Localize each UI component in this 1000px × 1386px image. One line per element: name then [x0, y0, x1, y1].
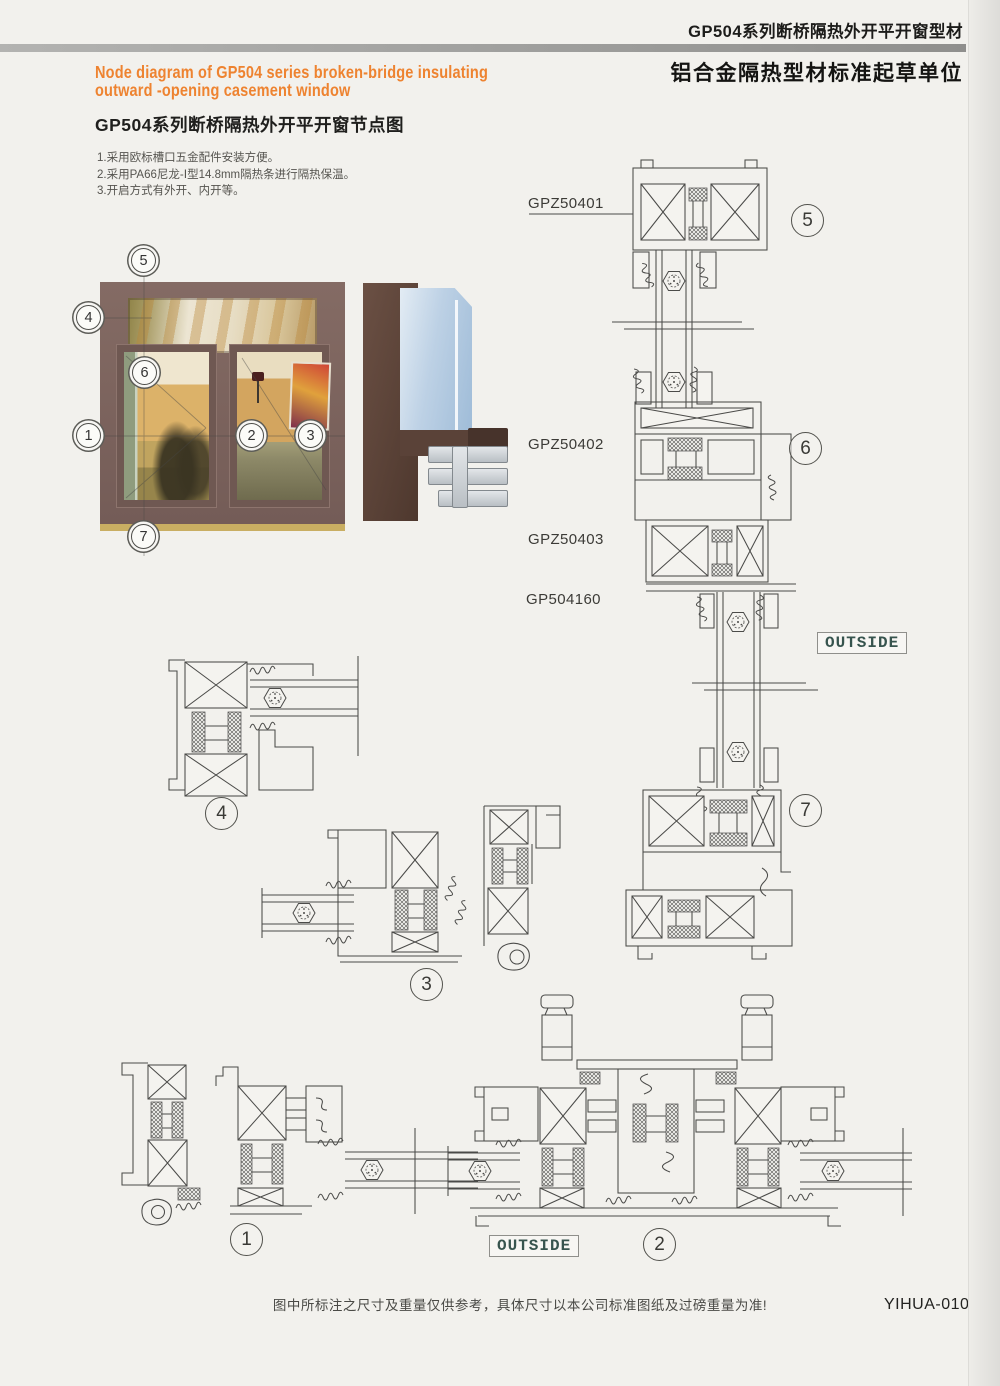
- callout-detail-5: 5: [791, 204, 824, 237]
- outside-label-bottom: OUTSIDE: [489, 1235, 579, 1257]
- callout-photo-7: 7: [131, 524, 156, 549]
- detail-2-drawing: [448, 995, 912, 1226]
- callout-detail-2: 2: [643, 1228, 676, 1261]
- profile-label-gpz50401: GPZ50401: [528, 195, 604, 212]
- callout-photo-2: 2: [239, 423, 264, 448]
- section-drawings: [0, 0, 1000, 1386]
- profile-label-gpz50402: GPZ50402: [528, 436, 604, 453]
- callout-photo-3: 3: [298, 423, 323, 448]
- callout-photo-5: 5: [131, 248, 156, 273]
- profile-label-gp504160: GP504160: [526, 591, 601, 608]
- callout-detail-4: 4: [205, 797, 238, 830]
- callout-detail-7: 7: [789, 794, 822, 827]
- callout-photo-1: 1: [76, 423, 101, 448]
- callout-detail-6: 6: [789, 432, 822, 465]
- catalog-page: GP504系列断桥隔热外开平开窗型材 铝合金隔热型材标准起草单位 Node di…: [0, 0, 1000, 1386]
- photo-annotation-lines: [78, 253, 345, 556]
- outside-label-right: OUTSIDE: [817, 632, 907, 654]
- callout-photo-6: 6: [132, 360, 157, 385]
- vertical-section-drawing: [529, 160, 818, 959]
- callout-photo-4: 4: [76, 305, 101, 330]
- scan-edge-shadow: [968, 0, 1000, 1386]
- footer-disclaimer: 图中所标注之尺寸及重量仅供参考，具体尺寸以本公司标准图纸及过磅重量为准!: [240, 1294, 800, 1314]
- profile-label-gpz50403: GPZ50403: [528, 531, 604, 548]
- detail-3-drawing: [262, 806, 560, 970]
- detail-4-drawing: [169, 656, 358, 796]
- page-code: YIHUA-010: [884, 1296, 969, 1314]
- detail-1-drawing: [122, 1063, 478, 1225]
- callout-detail-1: 1: [230, 1223, 263, 1256]
- callout-detail-3: 3: [410, 968, 443, 1001]
